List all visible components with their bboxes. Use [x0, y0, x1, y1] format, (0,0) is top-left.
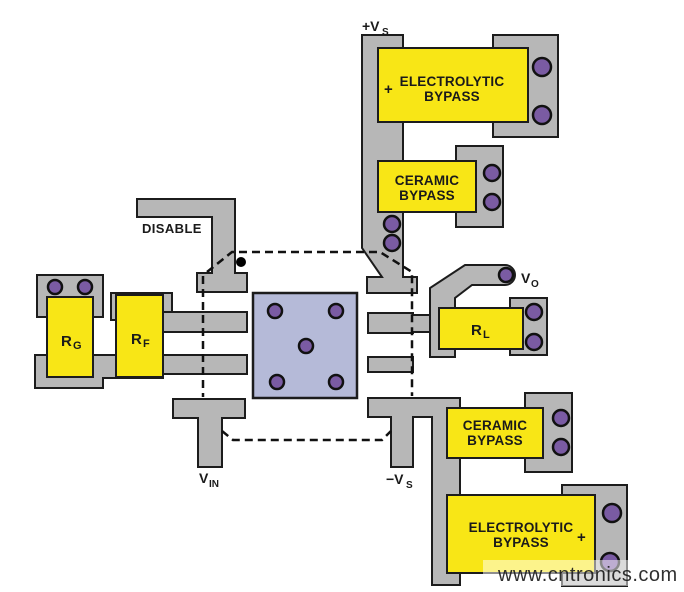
output-trace	[368, 313, 430, 333]
input-label: V	[199, 470, 209, 486]
via	[48, 280, 62, 294]
bottom-electrolytic-label-line1: ELECTROLYTIC	[469, 520, 574, 535]
ic-via	[299, 339, 313, 353]
ic-via	[268, 304, 282, 318]
pcb-layout-canvas: +V S DISABLE + ELECTROLYTIC BYPASS CERAM…	[0, 0, 684, 592]
via	[533, 106, 551, 124]
vin-to-negative-rail-route	[222, 431, 391, 440]
via	[553, 439, 569, 455]
negative-supply-label-sub: S	[406, 480, 413, 491]
via	[553, 410, 569, 426]
output-label-sub: O	[531, 279, 539, 290]
bottom-electrolytic-polarity: +	[577, 529, 586, 546]
via	[384, 235, 400, 251]
via	[526, 304, 542, 320]
via	[533, 58, 551, 76]
output-label: V	[521, 270, 531, 286]
disable-trace	[137, 199, 247, 292]
pcb-layout-diagram: +V S DISABLE + ELECTROLYTIC BYPASS CERAM…	[0, 0, 684, 592]
bottom-electrolytic-label-line2: BYPASS	[493, 535, 549, 550]
watermark: www.cntronics.com	[497, 564, 678, 586]
top-electrolytic-label-line1: ELECTROLYTIC	[400, 74, 505, 89]
rf-label: R	[131, 331, 142, 348]
positive-supply-label: +V	[362, 18, 380, 34]
input-label-sub: IN	[209, 479, 219, 490]
top-electrolytic-polarity: +	[384, 81, 393, 98]
negative-supply-label: −V	[386, 471, 404, 487]
disable-label: DISABLE	[142, 221, 202, 236]
rf-label-sub: F	[143, 338, 150, 350]
feedback-trace	[163, 312, 247, 332]
top-ceramic-label-line2: BYPASS	[399, 188, 455, 203]
bottom-ceramic-label-line1: CERAMIC	[463, 418, 527, 433]
vo-via	[499, 268, 513, 282]
via	[78, 280, 92, 294]
negative-supply-feed-trace	[368, 357, 413, 372]
ic-via	[270, 375, 284, 389]
rg-label: R	[61, 333, 72, 350]
via	[384, 216, 400, 232]
via	[526, 334, 542, 350]
ic-via	[329, 375, 343, 389]
ic-via	[329, 304, 343, 318]
rl-label-sub: L	[483, 329, 490, 341]
via	[484, 165, 500, 181]
bottom-ceramic-label-line2: BYPASS	[467, 433, 523, 448]
top-electrolytic-label-line2: BYPASS	[424, 89, 480, 104]
junction-dot	[236, 257, 246, 267]
positive-supply-label-sub: S	[382, 27, 389, 38]
vin-pad	[173, 399, 245, 467]
via	[484, 194, 500, 210]
rg-label-sub: G	[73, 340, 82, 352]
via	[603, 504, 621, 522]
top-ceramic-label-line1: CERAMIC	[395, 173, 459, 188]
rl-label: R	[471, 322, 482, 339]
